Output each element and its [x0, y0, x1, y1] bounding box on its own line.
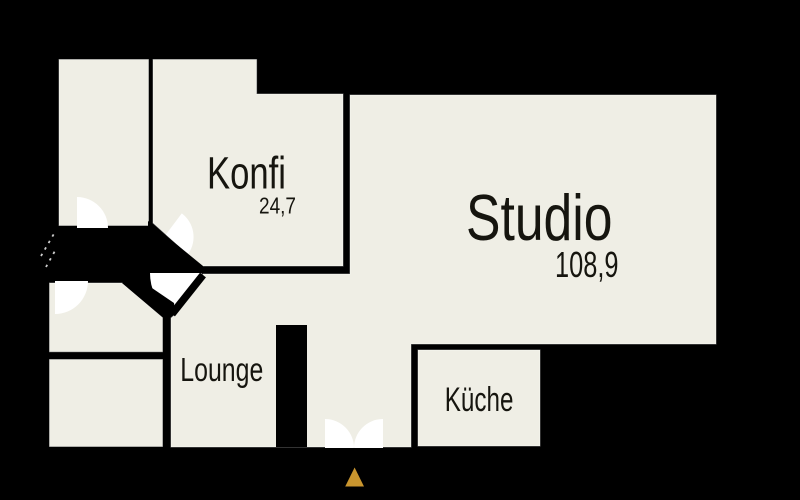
svg-text:108,9: 108,9 [555, 244, 619, 285]
svg-text:24,7: 24,7 [259, 193, 296, 219]
svg-text:Konfi: Konfi [207, 148, 286, 199]
svg-text:Küche: Küche [445, 381, 514, 419]
svg-text:Lounge: Lounge [180, 352, 263, 389]
